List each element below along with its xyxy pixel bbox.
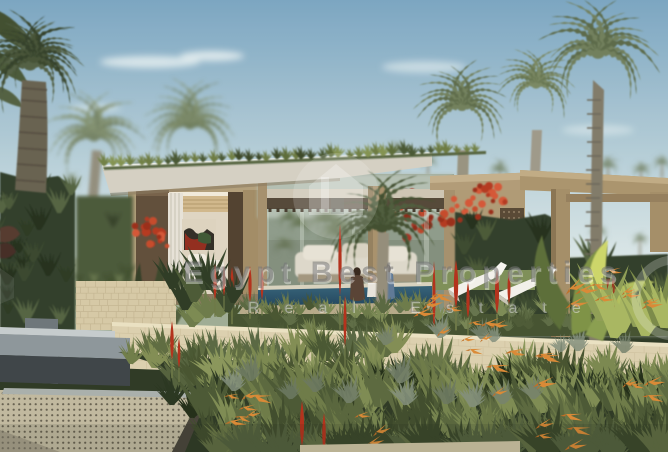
svg-text:Egypt Best Properties: Egypt Best Properties	[183, 256, 622, 289]
svg-text:Real Estate: Real Estate	[247, 299, 605, 316]
